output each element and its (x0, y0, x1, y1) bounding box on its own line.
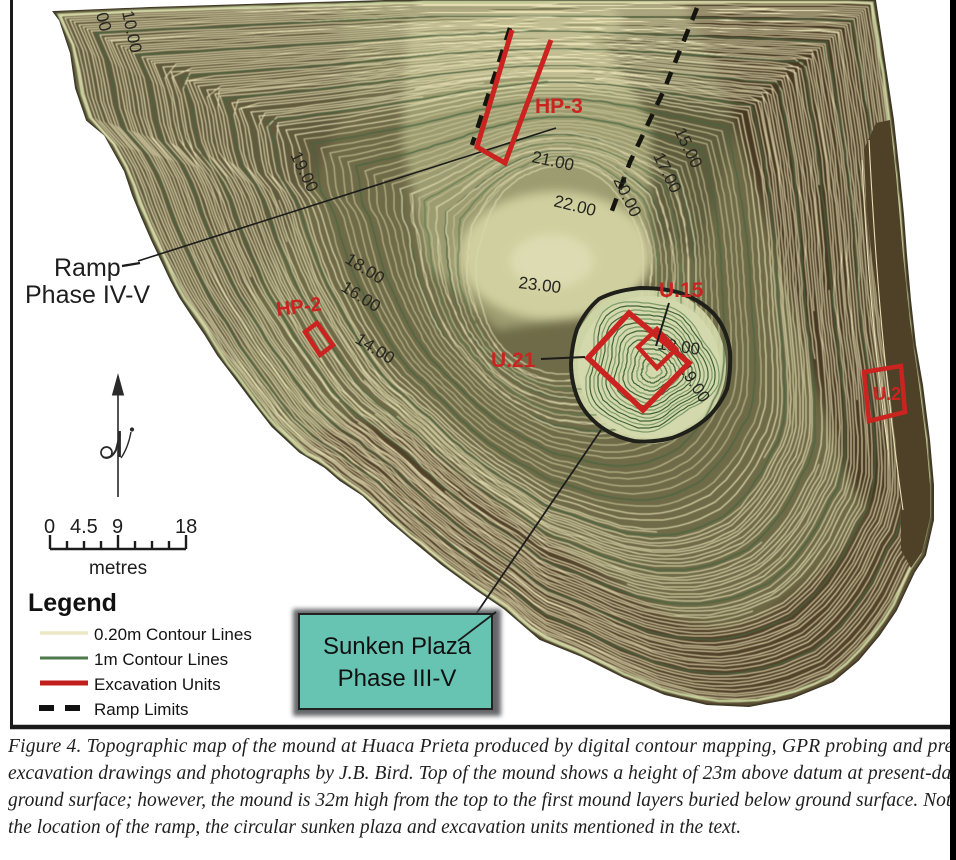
svg-text:metres: metres (89, 558, 147, 579)
svg-text:excavation drawings and photog: excavation drawings and photographs by J… (8, 763, 956, 784)
svg-text:4.5: 4.5 (70, 516, 98, 538)
svg-text:Sunken Plaza: Sunken Plaza (323, 633, 472, 660)
svg-text:9: 9 (112, 516, 123, 538)
svg-text:0.20m Contour Lines: 0.20m Contour Lines (94, 625, 252, 644)
svg-text:Ramp: Ramp (54, 254, 121, 282)
svg-text:0: 0 (44, 516, 55, 538)
svg-text:U.21: U.21 (491, 349, 536, 372)
svg-text:U.15: U.15 (659, 279, 704, 302)
svg-text:ground surface; however, the m: ground surface; however, the mound is 32… (8, 790, 956, 811)
svg-text:Phase IV-V: Phase IV-V (25, 281, 150, 309)
svg-text:HP-3: HP-3 (535, 95, 583, 118)
svg-text:U.2: U.2 (873, 384, 901, 404)
svg-text:the location of the ramp, the: the location of the ramp, the circular s… (8, 817, 741, 838)
svg-text:1m Contour Lines: 1m Contour Lines (94, 650, 228, 669)
svg-text:Excavation Units: Excavation Units (94, 675, 221, 694)
svg-text:Figure 4. Topographic map of: Figure 4. Topographic map of the mound a… (7, 736, 956, 757)
svg-text:Ramp Limits: Ramp Limits (94, 700, 188, 719)
svg-text:Legend: Legend (28, 589, 117, 617)
svg-text:18: 18 (175, 516, 197, 538)
svg-text:Phase III-V: Phase III-V (338, 665, 457, 692)
